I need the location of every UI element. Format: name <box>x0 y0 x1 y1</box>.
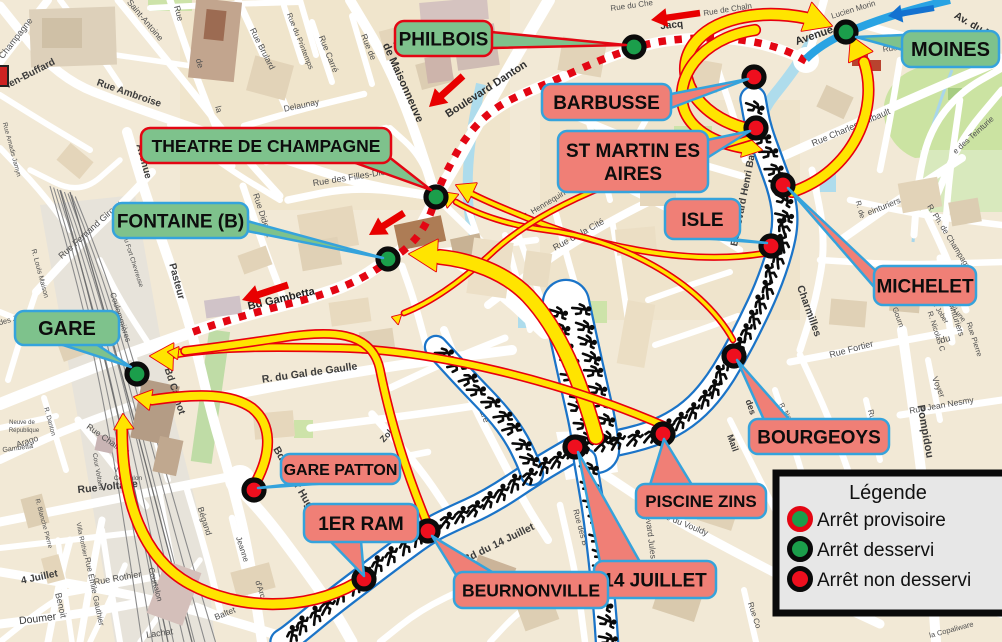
svg-text:AIRES: AIRES <box>604 164 662 185</box>
svg-text:14 JUILLET: 14 JUILLET <box>603 570 707 591</box>
svg-text:BARBUSSE: BARBUSSE <box>553 93 660 114</box>
svg-text:GARE PATTON: GARE PATTON <box>284 462 398 479</box>
svg-text:Légende: Légende <box>849 482 927 504</box>
svg-text:Arrêt non desservi: Arrêt non desservi <box>817 570 971 591</box>
svg-text:BOURGEOYS: BOURGEOYS <box>757 427 881 448</box>
svg-text:PISCINE ZINS: PISCINE ZINS <box>645 492 756 511</box>
svg-text:1ER RAM: 1ER RAM <box>318 514 404 535</box>
svg-text:MICHELET: MICHELET <box>876 276 974 297</box>
svg-text:FONTAINE (B): FONTAINE (B) <box>117 211 244 232</box>
svg-text:République: République <box>9 428 40 434</box>
svg-text:THEATRE DE CHAMPAGNE: THEATRE DE CHAMPAGNE <box>152 136 381 156</box>
svg-text:BEURNONVILLE: BEURNONVILLE <box>462 580 600 600</box>
svg-text:Arrêt provisoire: Arrêt provisoire <box>817 510 946 531</box>
svg-text:Arrêt desservi: Arrêt desservi <box>817 540 934 561</box>
svg-text:PHILBOIS: PHILBOIS <box>399 29 489 50</box>
svg-text:GARE: GARE <box>38 318 96 340</box>
svg-text:Neuve de: Neuve de <box>9 420 35 426</box>
svg-text:ST MARTIN ES: ST MARTIN ES <box>566 141 700 162</box>
svg-text:MOINES: MOINES <box>911 39 990 61</box>
svg-text:ISLE: ISLE <box>681 210 723 231</box>
